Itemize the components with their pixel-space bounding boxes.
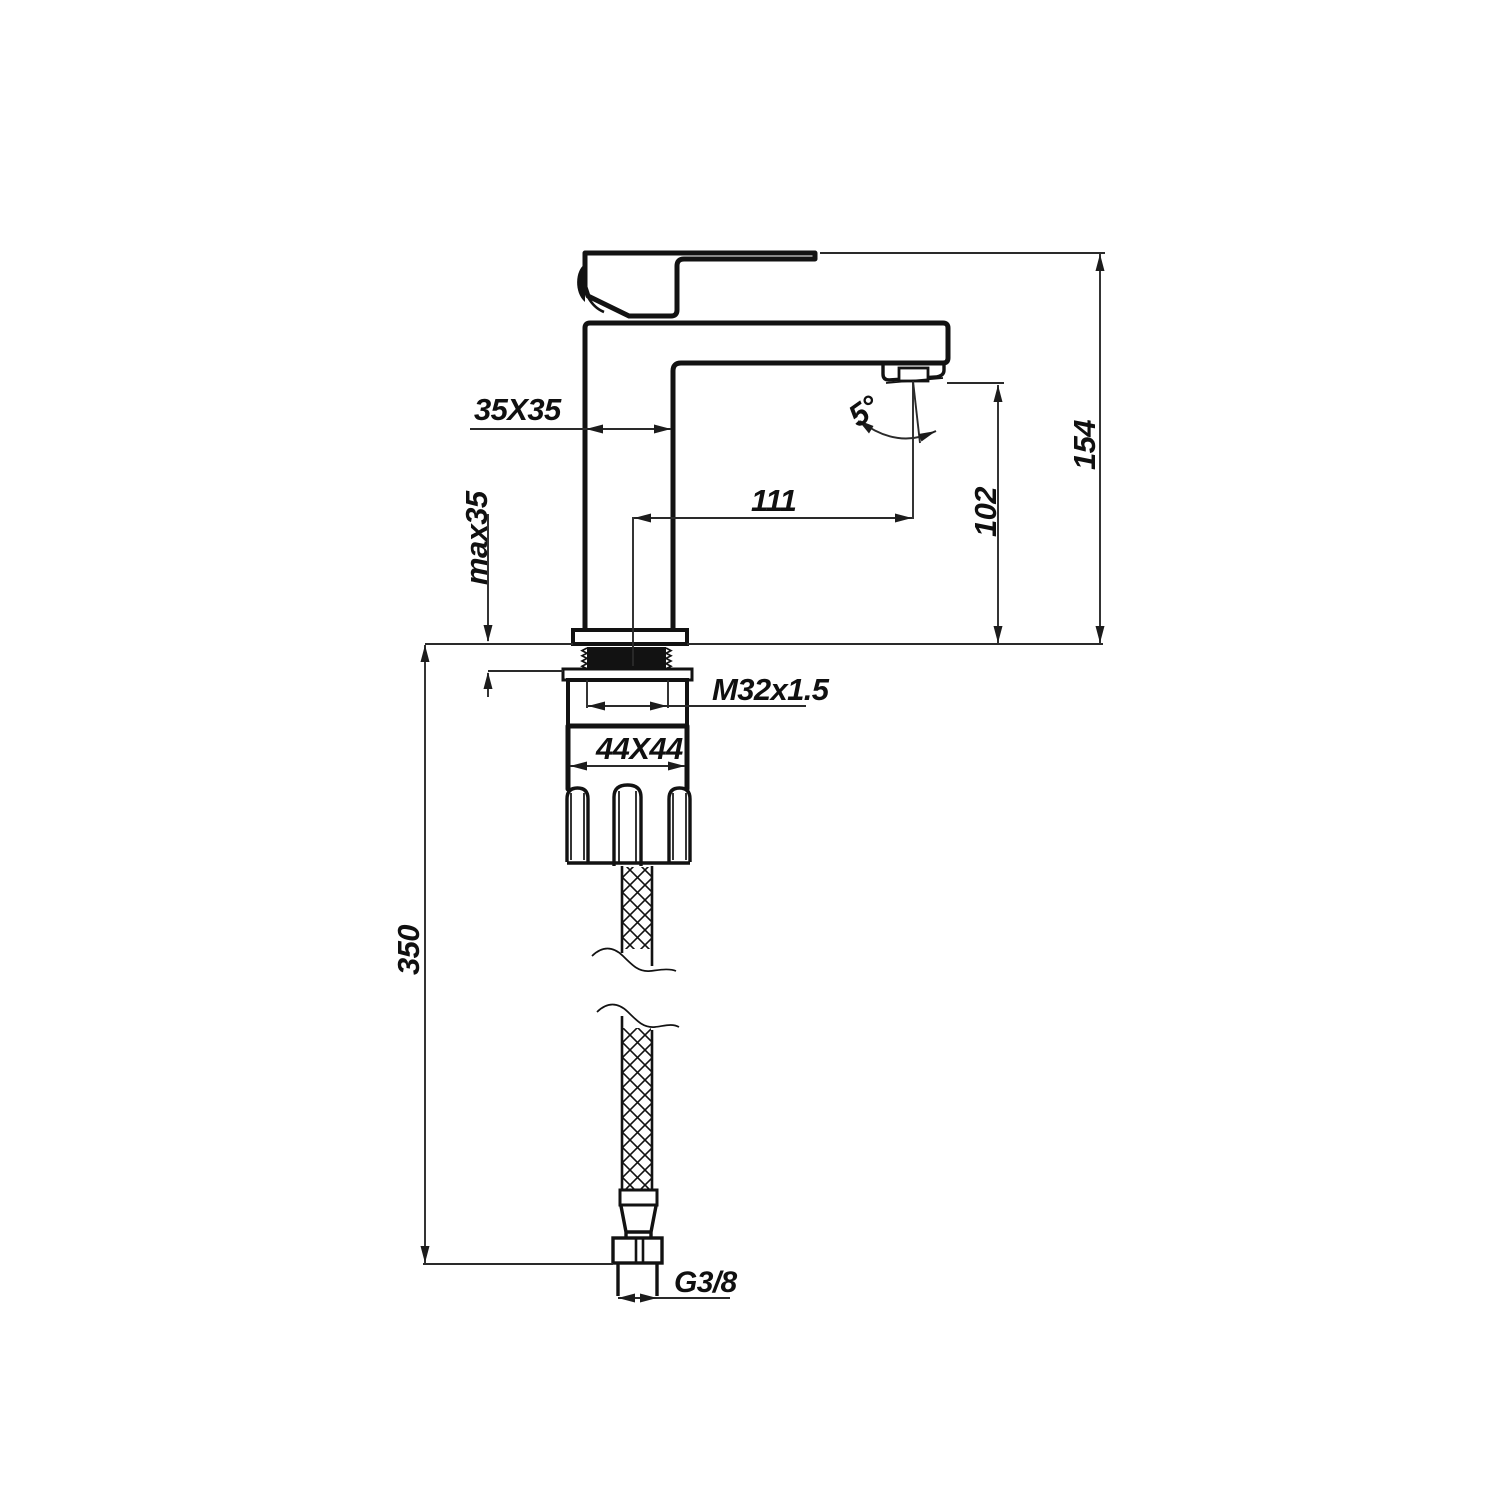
mounting-nut <box>567 785 690 866</box>
thread-block <box>587 647 666 668</box>
dim-label-shank-thread: M32x1.5 <box>712 672 830 707</box>
dimension-outlet-height: 102 <box>947 383 1004 643</box>
dimension-base-section: 44X44 <box>570 731 685 771</box>
faucet-technical-drawing: 35X35 max35 111 5° 102 154 <box>0 0 1500 1500</box>
dimension-body-section: 35X35 <box>470 392 671 434</box>
spout-body <box>585 323 948 632</box>
ferrule-taper <box>621 1206 656 1238</box>
dim-label-body-section: 35X35 <box>474 392 562 427</box>
dim-label-max-thickness: max35 <box>459 490 494 585</box>
dimension-overall-height: 154 <box>820 253 1105 643</box>
dim-label-overall-height: 154 <box>1067 420 1102 470</box>
handle-lever <box>585 253 815 316</box>
hex-nut <box>613 1238 662 1263</box>
inlet-nipple <box>618 1263 657 1296</box>
hose-break-lower <box>597 1005 679 1028</box>
dimension-max-thickness: max35 <box>459 490 494 697</box>
handle-pivot-dot <box>577 264 585 302</box>
dim-label-inlet-thread: G3/8 <box>674 1266 738 1299</box>
supply-hose-upper <box>622 866 652 966</box>
counter-reference <box>425 644 1103 671</box>
technical-drawing-page: 35X35 max35 111 5° 102 154 <box>0 0 1500 1500</box>
dimension-inlet-thread: G3/8 <box>618 1266 738 1303</box>
dimension-hose-length: 350 <box>391 645 613 1264</box>
dim-label-outlet-height: 102 <box>968 487 1003 537</box>
ferrule <box>620 1190 657 1205</box>
hose-end-fitting <box>613 1190 662 1296</box>
thread-zigzag-left <box>582 648 587 669</box>
mounting-flange <box>573 630 687 644</box>
thread-zigzag-right <box>666 648 671 669</box>
supply-hose-lower <box>622 1016 652 1190</box>
dim-label-base-section: 44X44 <box>595 731 683 766</box>
dimension-spout-angle: 5° <box>842 381 936 443</box>
dim-label-spout-angle: 5° <box>842 388 886 434</box>
shank-box <box>568 680 687 726</box>
faucet-outline <box>563 253 948 1296</box>
dim-label-hose-length: 350 <box>391 925 426 975</box>
dim-label-spout-reach: 111 <box>751 483 796 518</box>
hose-break-upper <box>592 949 676 972</box>
